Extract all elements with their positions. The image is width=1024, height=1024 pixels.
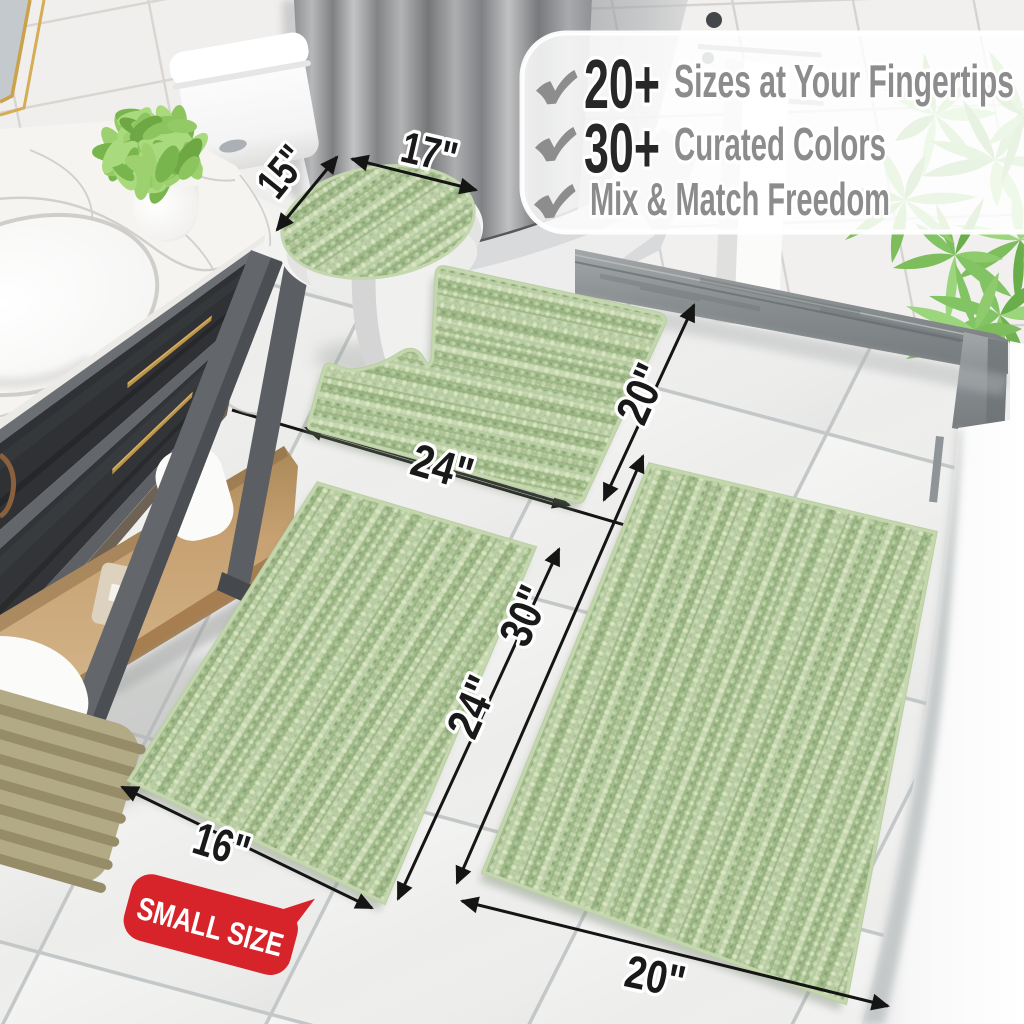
svg-text:Sizes at Your Fingertips: Sizes at Your Fingertips — [674, 55, 1014, 107]
svg-text:Mix & Match Freedom: Mix & Match Freedom — [590, 173, 890, 225]
svg-text:Curated Colors: Curated Colors — [674, 118, 886, 170]
